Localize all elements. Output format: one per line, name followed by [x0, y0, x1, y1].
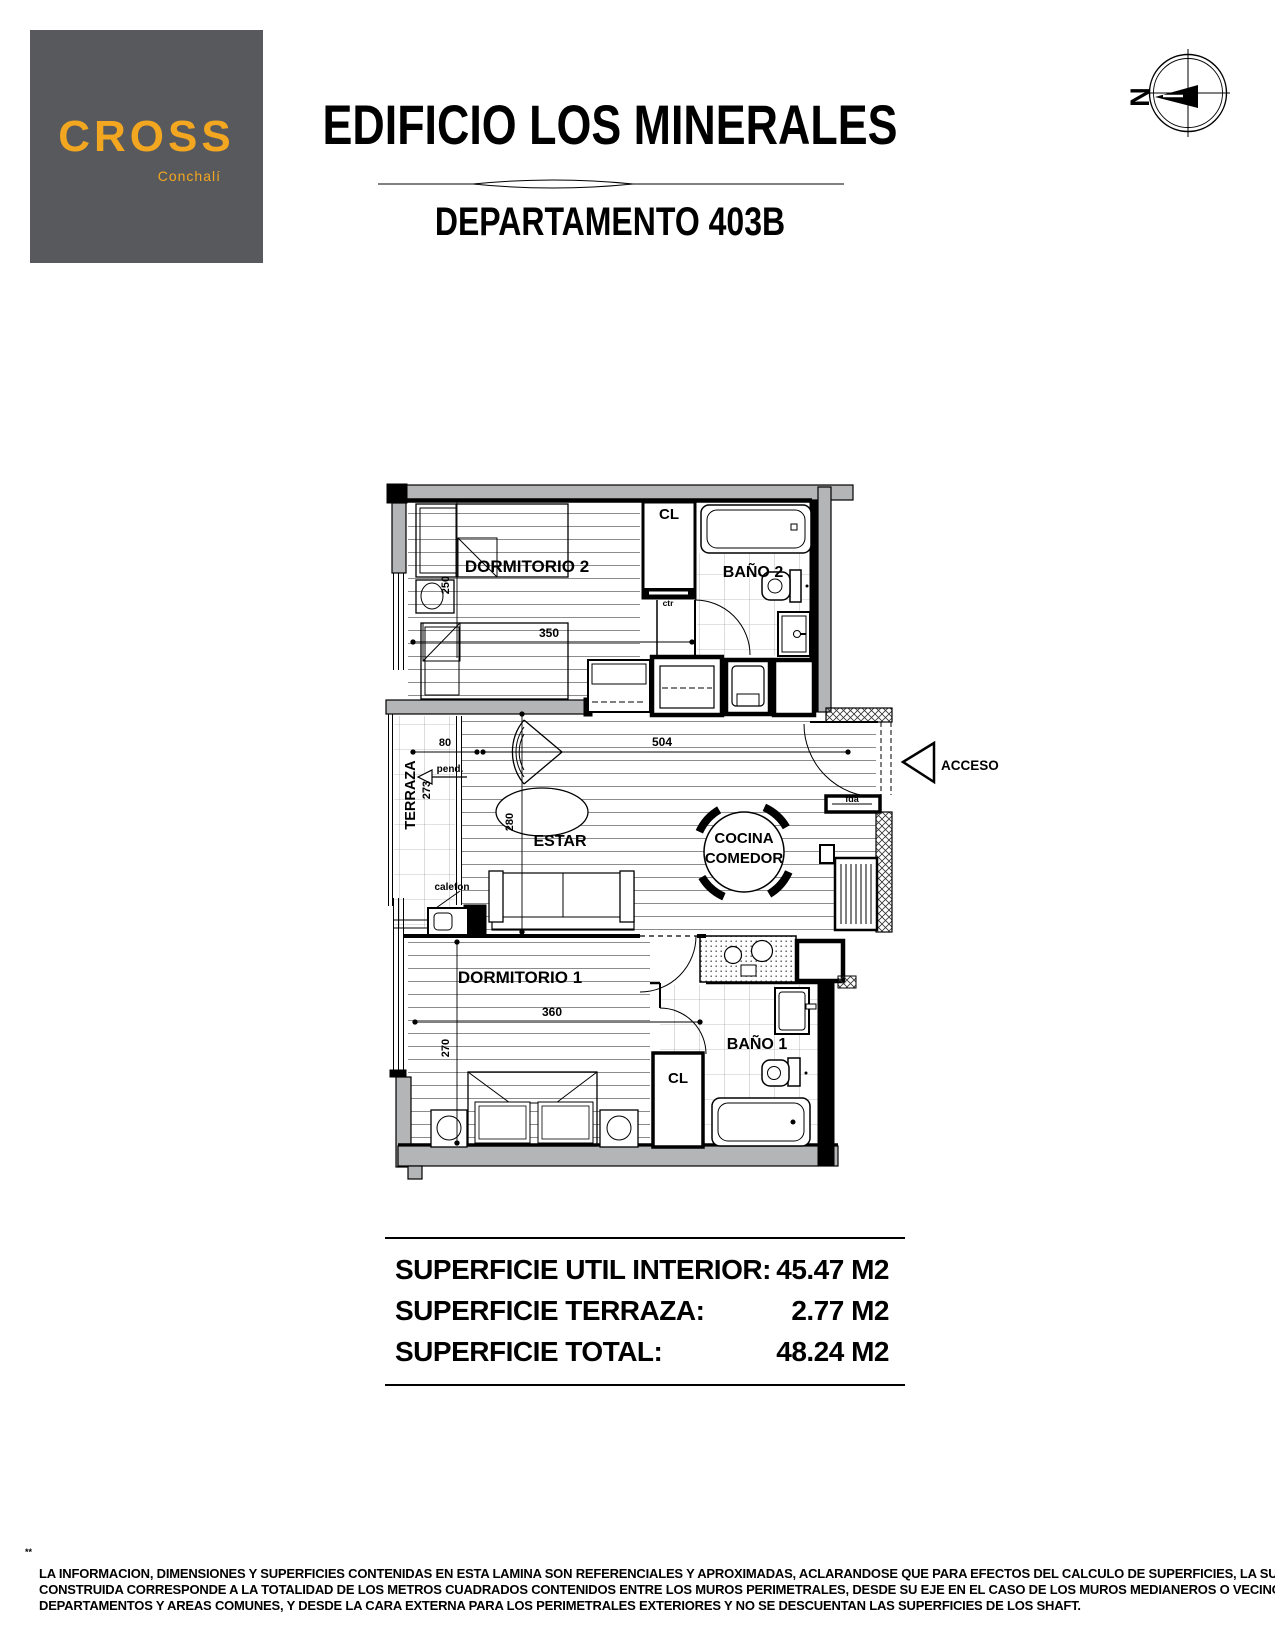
summary-label: SUPERFICIE UTIL INTERIOR:	[385, 1249, 771, 1290]
label-dormitorio-1: DORMITORIO 1	[458, 968, 582, 987]
table-row: SUPERFICIE UTIL INTERIOR: 45.47 M2	[385, 1249, 905, 1290]
dim-250: 250	[440, 576, 452, 594]
dim-350: 350	[539, 626, 559, 640]
toilet2-tank	[790, 570, 801, 602]
logo-brand-text: CROSS	[30, 112, 263, 162]
table-row: SUPERFICIE TERRAZA: 2.77 M2	[385, 1290, 905, 1331]
label-bano-2: BAÑO 2	[723, 561, 784, 581]
dim-80: 80	[439, 737, 451, 749]
kitchen-cabinet	[588, 660, 650, 712]
pantry	[774, 660, 814, 715]
label-dormitorio-2: DORMITORIO 2	[465, 557, 589, 576]
cross-logo: CROSS Conchalí	[30, 30, 263, 263]
legal-footnote: **LA INFORMACION, DIMENSIONES Y SUPERFIC…	[25, 1547, 1255, 1614]
summary-label: SUPERFICIE TERRAZA:	[385, 1290, 704, 1331]
footnote-line: CONSTRUIDA CORRESPONDE A LA TOTALIDAD DE…	[25, 1582, 1255, 1598]
dim-273: 273	[421, 781, 433, 799]
access-arrow-icon	[903, 743, 934, 782]
label-fda: fda	[845, 794, 859, 804]
label-closet-bottom: CL	[668, 1070, 688, 1087]
page-title: EDIFICIO LOS MINERALES	[322, 92, 898, 157]
summary-label: SUPERFICIE TOTAL:	[385, 1331, 662, 1372]
north-compass-icon: N	[1060, 40, 1240, 155]
label-ctr: ctr	[663, 598, 675, 608]
logo-location-text: Conchalí	[158, 168, 221, 184]
summary-value: 45.47 M2	[776, 1249, 905, 1290]
footnote-line: LA INFORMACION, DIMENSIONES Y SUPERFICIE…	[25, 1566, 1255, 1582]
dim-270: 270	[440, 1039, 452, 1057]
footnote-marker: **	[25, 1547, 32, 1557]
closet-dorm1	[653, 1053, 703, 1147]
dim-280: 280	[504, 813, 516, 831]
compass-north-label: N	[1125, 87, 1155, 107]
floor-plan: DORMITORIO 2 BAÑO 2 CL ctr TERRAZA ESTAR…	[355, 450, 1015, 1190]
summary-value: 48.24 M2	[776, 1331, 905, 1372]
title-divider	[378, 174, 844, 194]
label-acceso: ACCESO	[941, 758, 999, 773]
dim-360: 360	[542, 1005, 562, 1019]
toilet1-tank	[788, 1058, 800, 1086]
label-cocina: COCINA	[714, 830, 773, 847]
label-calefon: calefon	[434, 882, 469, 893]
label-closet-top: CL	[659, 506, 679, 523]
dim-504: 504	[652, 735, 672, 749]
table-row: SUPERFICIE TOTAL: 48.24 M2	[385, 1331, 905, 1372]
surface-summary-table: SUPERFICIE UTIL INTERIOR: 45.47 M2 SUPER…	[385, 1237, 905, 1386]
label-terraza: TERRAZA	[403, 760, 419, 830]
floorplan-sheet: CROSS Conchalí EDIFICIO LOS MINERALES DE…	[0, 0, 1275, 1650]
label-comedor: COMEDOR	[705, 850, 784, 867]
label-estar: ESTAR	[533, 833, 586, 850]
footnote-line: DEPARTAMENTOS Y AREAS COMUNES, Y DESDE L…	[25, 1598, 1255, 1614]
apartment-title: DEPARTAMENTO 403B	[322, 200, 898, 245]
summary-value: 2.77 M2	[791, 1290, 905, 1331]
label-bano-1: BAÑO 1	[727, 1033, 788, 1053]
label-pend: pend.	[437, 764, 464, 775]
floor-textures	[394, 502, 876, 1143]
